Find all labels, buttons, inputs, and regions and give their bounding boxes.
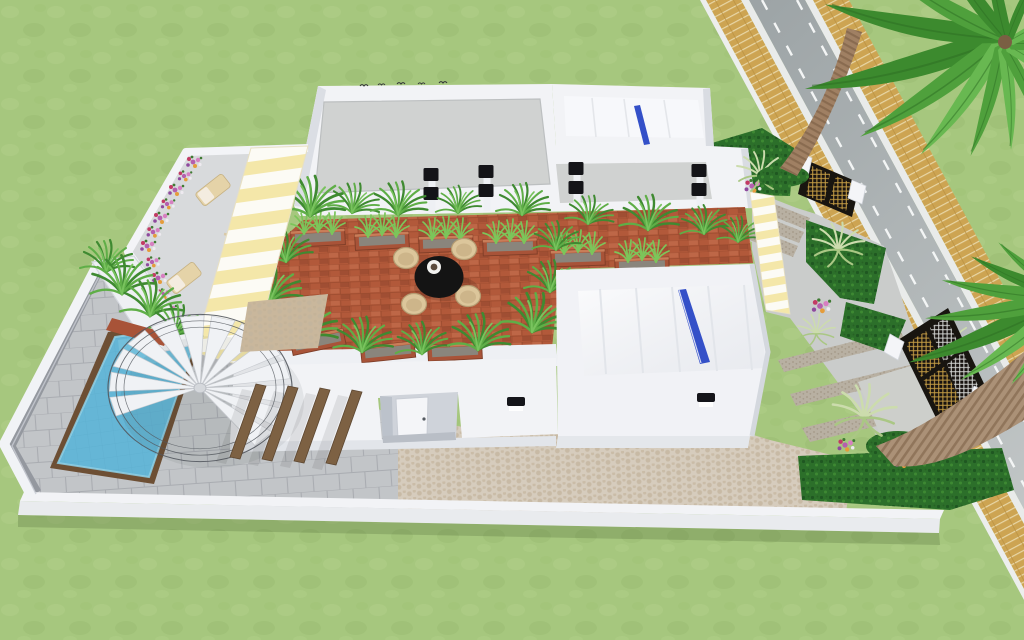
dining-chair xyxy=(452,239,477,260)
dining-chair xyxy=(394,248,419,269)
villa-render xyxy=(0,0,1024,640)
east-building-roof-panel xyxy=(578,284,766,376)
plate-food xyxy=(431,264,438,271)
entry-alcove xyxy=(380,392,458,443)
dining-chair xyxy=(402,294,427,315)
skylight-roof-panel xyxy=(564,96,704,138)
east-front-face xyxy=(556,436,750,448)
door-knob xyxy=(422,417,425,420)
step-light xyxy=(697,393,715,407)
palm1-crown-center xyxy=(998,35,1012,49)
front-building-east xyxy=(556,264,768,448)
stair-center-column xyxy=(194,383,206,393)
step-light xyxy=(507,397,525,411)
render-viewport xyxy=(0,0,1024,640)
landing-mat-texture xyxy=(240,294,328,352)
skylight-roof-north xyxy=(552,84,714,148)
